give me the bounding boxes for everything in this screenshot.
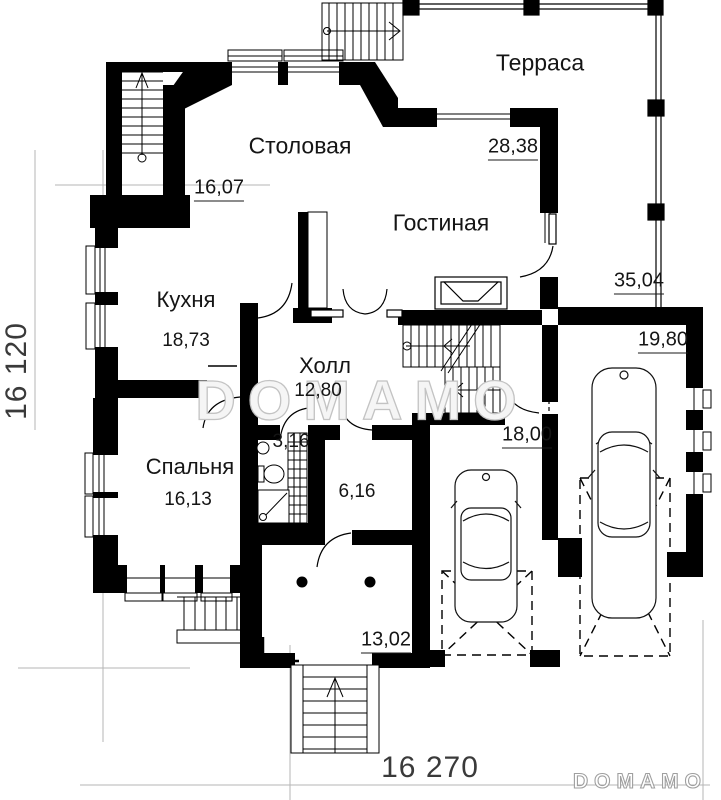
room-label-living: Гостиная	[393, 210, 490, 237]
area-value-kitchen: 18,73	[162, 330, 210, 352]
room-label-bedroom: Спальня	[146, 454, 234, 480]
car-garage	[588, 368, 660, 618]
area-value-carport: 18,00	[502, 424, 552, 449]
brand-logo: DOMAMO	[573, 770, 707, 794]
area-value-porch: 13,02	[361, 629, 411, 654]
room-label-hall: Холл	[299, 353, 351, 379]
area-value-bathroom: 3,16	[273, 431, 310, 453]
area-value-terrace: 35,04	[614, 270, 664, 295]
room-label-terrace: Терраса	[496, 50, 584, 77]
watermark: DOMAMO	[195, 368, 528, 433]
toilet-tank	[258, 466, 264, 482]
sink	[257, 442, 269, 454]
toilet-bowl	[264, 465, 284, 483]
car-carport	[451, 470, 521, 622]
area-value-bedroom: 16,13	[164, 489, 212, 511]
area-value-garage: 19,80	[638, 329, 688, 354]
staircase-upper-left	[122, 72, 163, 162]
area-value-dining: 16,07	[194, 177, 244, 202]
room-label-kitchen: Кухня	[157, 287, 216, 313]
entrance-stairs	[291, 665, 379, 753]
garage-opening	[542, 400, 558, 416]
fireplace	[435, 277, 507, 309]
column-shaft	[298, 212, 327, 308]
floor-plan-page: Терраса Столовая 16,07 28,38 Гостиная Ку…	[0, 0, 721, 800]
area-value-living: 28,38	[488, 136, 538, 161]
area-value-corridor: 6,16	[339, 481, 376, 503]
dimension-width: 16 270	[381, 751, 479, 785]
dimension-height: 16 120	[0, 322, 34, 420]
room-label-dining: Столовая	[249, 133, 352, 160]
area-value-hall: 12,80	[294, 380, 342, 402]
